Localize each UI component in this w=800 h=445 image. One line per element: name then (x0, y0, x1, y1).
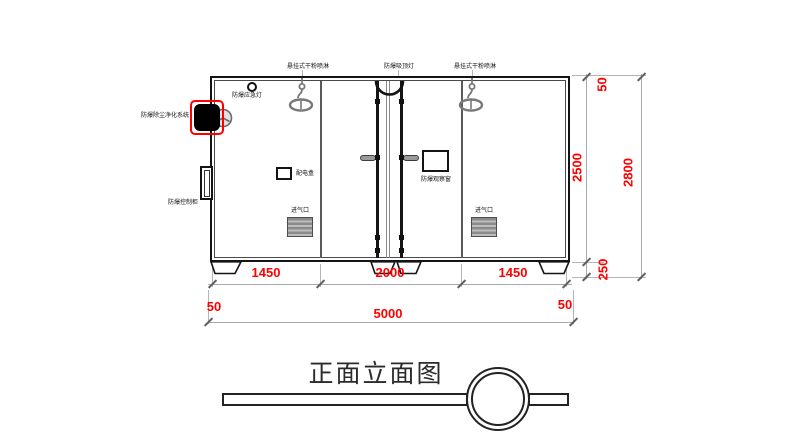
dry-powder-sprinkler-icon (287, 78, 317, 120)
dimension-line-side-inner (586, 74, 587, 279)
dim-bottom-total: 5000 (353, 307, 423, 320)
dimension-tick (569, 317, 578, 326)
air-inlet-left-label: 进气口 (284, 208, 316, 215)
duct-node (375, 155, 380, 160)
dim-side-base-height: 250 (597, 250, 610, 290)
partition-line-left (320, 81, 322, 258)
sprinkler-right-label: 悬挂式干粉喷淋 (444, 64, 506, 71)
duct-node (375, 99, 380, 104)
dim-side-body-height: 2500 (571, 138, 584, 198)
dim-bottom-segment-1: 1450 (231, 266, 301, 279)
air-inlet-louver (287, 217, 313, 237)
elevation-drawing-canvas: 悬挂式干粉喷淋 防爆吸顶灯 悬挂式干粉喷淋 防爆应急灯 防爆除尘净化系统 防爆控… (0, 0, 800, 445)
duct-node (399, 99, 404, 104)
control-cabinet-inner-line (204, 170, 210, 197)
section-circle-outer (466, 367, 530, 431)
duct-node (375, 235, 380, 240)
duct-clamp-right (403, 155, 419, 161)
emergency-light-icon (247, 82, 257, 92)
duct-node (399, 248, 404, 253)
dim-bottom-offset-left: 50 (199, 300, 229, 313)
duct-center-lines (386, 81, 390, 258)
control-cabinet-label: 防爆控制柜 (162, 200, 198, 207)
dimension-line-side-outer (641, 74, 642, 279)
scale-bar-left (222, 393, 468, 406)
sprinkler-left-label: 悬挂式干粉喷淋 (277, 64, 339, 71)
red-highlight-box (190, 100, 224, 135)
dim-side-total-height: 2800 (622, 143, 635, 203)
dust-purification-label: 防爆除尘净化系统 (136, 113, 189, 120)
air-inlet-louver (471, 217, 497, 237)
duct-node (399, 235, 404, 240)
container-inner-wall-line (214, 80, 566, 258)
duct-node (375, 248, 380, 253)
scale-bar-right (528, 393, 569, 406)
distribution-box-outline (276, 167, 292, 180)
dim-bottom-segment-2: 2000 (355, 266, 425, 279)
container-outline (210, 76, 570, 262)
dim-side-top-offset: 50 (596, 70, 609, 100)
dim-bottom-segment-3: 1450 (478, 266, 548, 279)
duct-column-right (400, 81, 403, 258)
dry-powder-sprinkler-icon (457, 78, 487, 120)
section-circle-inner (471, 372, 525, 426)
distribution-box-label: 配电盒 (296, 171, 320, 178)
dim-bottom-offset-right: 50 (550, 298, 580, 311)
emergency-light-label: 防爆应急灯 (232, 93, 276, 100)
duct-column-left (376, 81, 379, 258)
dimension-line-bottom-total (208, 322, 574, 323)
extension-line (572, 75, 646, 76)
duct-node (399, 155, 404, 160)
ceiling-light-label: 防爆吸顶灯 (368, 64, 430, 71)
duct-clamp-left (360, 155, 376, 161)
drawing-title: 正面立面图 (276, 354, 476, 390)
dimension-line-bottom-segments (208, 284, 572, 285)
control-cabinet-outline (200, 166, 213, 200)
air-inlet-right-label: 进气口 (468, 208, 500, 215)
observation-window-outline (422, 150, 449, 172)
observation-window-label: 防爆观察窗 (412, 177, 460, 184)
duct-top-arc (373, 80, 407, 98)
